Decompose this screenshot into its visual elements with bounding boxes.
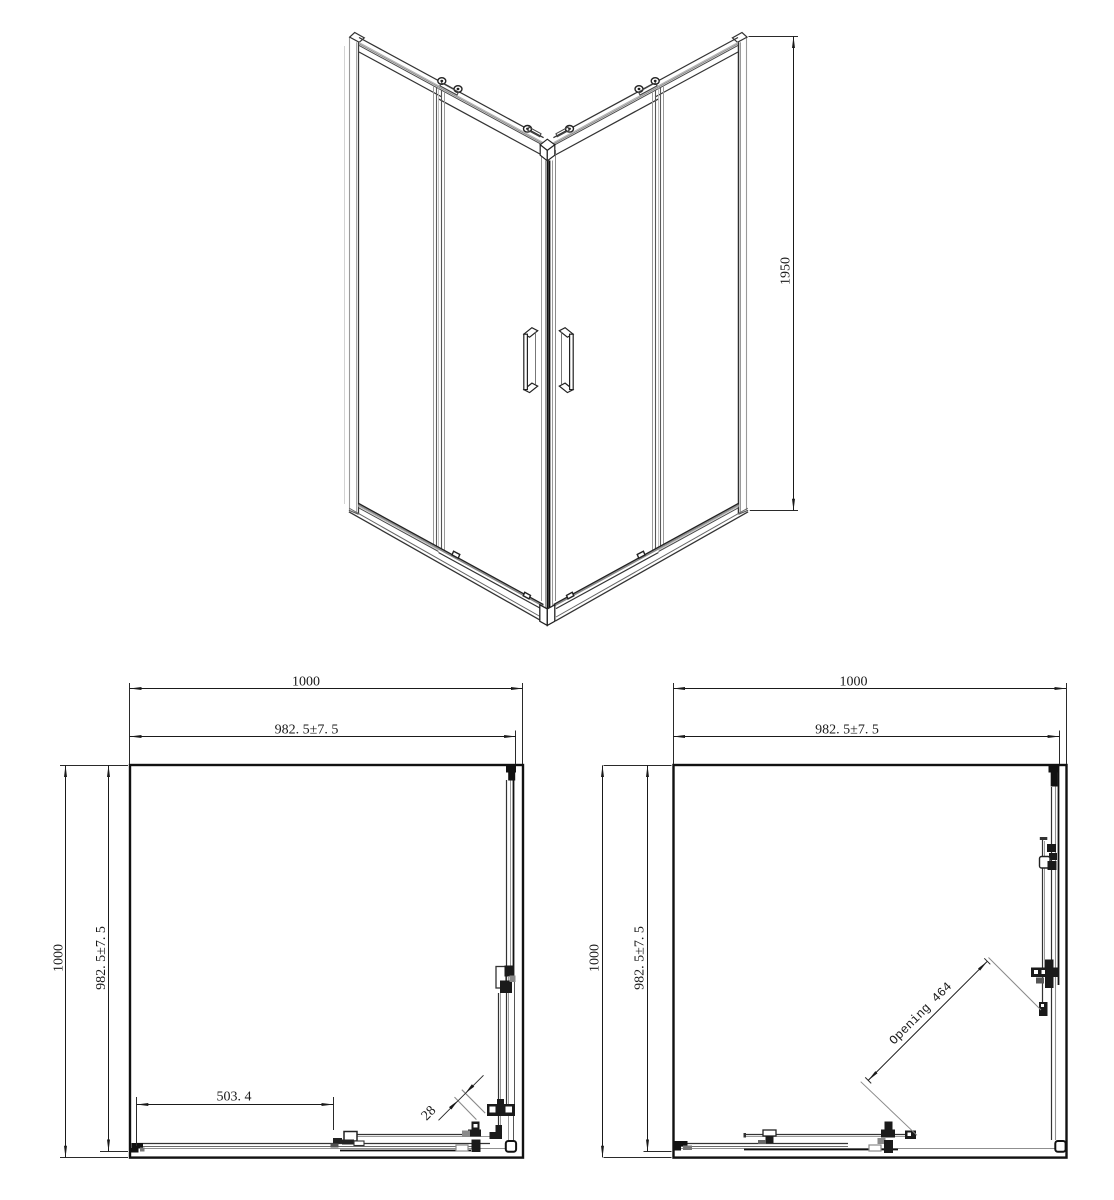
svg-text:982. 5±7. 5: 982. 5±7. 5 — [633, 926, 648, 990]
svg-text:1950: 1950 — [779, 257, 794, 285]
svg-text:982. 5±7. 5: 982. 5±7. 5 — [275, 722, 339, 737]
svg-text:982. 5±7. 5: 982. 5±7. 5 — [94, 926, 109, 990]
svg-text:1000: 1000 — [588, 944, 603, 972]
svg-text:503. 4: 503. 4 — [217, 1090, 252, 1105]
svg-text:1000: 1000 — [840, 675, 868, 690]
svg-text:1000: 1000 — [292, 675, 320, 690]
svg-text:982. 5±7. 5: 982. 5±7. 5 — [815, 722, 879, 737]
svg-text:1000: 1000 — [51, 944, 66, 972]
